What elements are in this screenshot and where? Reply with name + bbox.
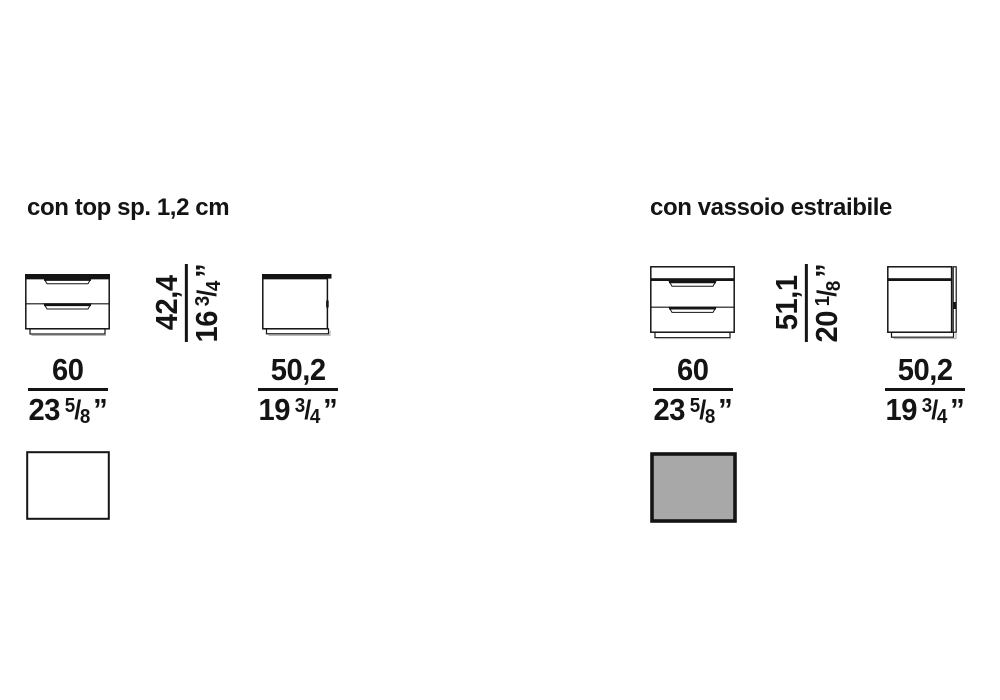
- inch-denominator: 4: [203, 281, 225, 291]
- width-cm-value: 60: [52, 357, 83, 383]
- height-inch-value: 201/8”: [814, 264, 840, 343]
- dimension-diagram-page: { "inch_mark": "\u201d", "fraction_slash…: [0, 0, 1000, 700]
- plinth-shadow: [269, 331, 331, 336]
- section-title: con top sp. 1,2 cm: [27, 196, 229, 220]
- inch-whole: 20: [809, 311, 844, 342]
- inch-denominator: 8: [823, 281, 845, 291]
- inch-mark: ”: [718, 392, 732, 427]
- fraction-rule: [185, 264, 188, 342]
- inch-mark: ”: [189, 264, 224, 278]
- fraction-rule: [258, 388, 338, 391]
- section-title: con vassoio estraibile: [650, 196, 892, 220]
- height-cm-value: 51,1: [774, 276, 800, 331]
- side-view-drawing: [887, 266, 958, 339]
- width-inch-value: 235/8”: [654, 397, 733, 423]
- depth-dimension: 50,2 193/4”: [865, 357, 985, 423]
- inch-whole: 23: [654, 392, 685, 427]
- front-view-drawing: [650, 266, 735, 339]
- depth-inch-value: 193/4”: [886, 397, 965, 423]
- inch-mark: ”: [809, 264, 844, 278]
- inch-denominator: 4: [310, 406, 320, 428]
- top-view-outline: [652, 454, 735, 521]
- fraction-rule: [28, 388, 108, 391]
- inch-whole: 19: [886, 392, 917, 427]
- fraction-slash: /: [192, 290, 222, 297]
- side-view-drawing: [262, 274, 333, 336]
- depth-cm-value: 50,2: [898, 357, 953, 383]
- depth-dimension: 50,2 193/4”: [238, 357, 358, 423]
- width-cm-value: 60: [677, 357, 708, 383]
- height-inch-value: 163/4”: [194, 264, 220, 343]
- carcass-outline: [651, 267, 734, 332]
- inch-denominator: 4: [937, 406, 947, 428]
- plinth: [30, 329, 105, 334]
- top-view-outline: [27, 452, 109, 519]
- width-inch-value: 235/8”: [29, 397, 108, 423]
- inch-mark: ”: [950, 392, 964, 427]
- inch-denominator: 8: [80, 406, 90, 428]
- plinth: [892, 332, 954, 337]
- front-panel-strip: [953, 267, 956, 332]
- height-cm-value: 42,4: [154, 276, 180, 331]
- inch-mark: ”: [323, 392, 337, 427]
- width-dimension: 60 235/8”: [8, 357, 128, 423]
- front-view-drawing: [25, 274, 110, 336]
- top-view-drawing: [26, 451, 110, 520]
- top-view-drawing: [650, 452, 737, 523]
- carcass-outline: [888, 267, 952, 332]
- inch-denominator: 8: [705, 406, 715, 428]
- fraction-rule: [885, 388, 965, 391]
- inch-mark: ”: [93, 392, 107, 427]
- inch-whole: 19: [259, 392, 290, 427]
- inch-numerator: 1: [812, 296, 834, 306]
- fraction-rule: [653, 388, 733, 391]
- tray-divider: [888, 278, 952, 281]
- depth-cm-value: 50,2: [271, 357, 326, 383]
- inch-whole: 16: [189, 311, 224, 342]
- width-dimension: 60 235/8”: [633, 357, 753, 423]
- plinth: [655, 332, 730, 337]
- fraction-slash: /: [812, 290, 842, 297]
- inch-numerator: 3: [192, 296, 214, 306]
- carcass-outline: [263, 279, 328, 329]
- inch-whole: 23: [29, 392, 60, 427]
- fraction-rule: [805, 264, 808, 342]
- depth-inch-value: 193/4”: [259, 397, 338, 423]
